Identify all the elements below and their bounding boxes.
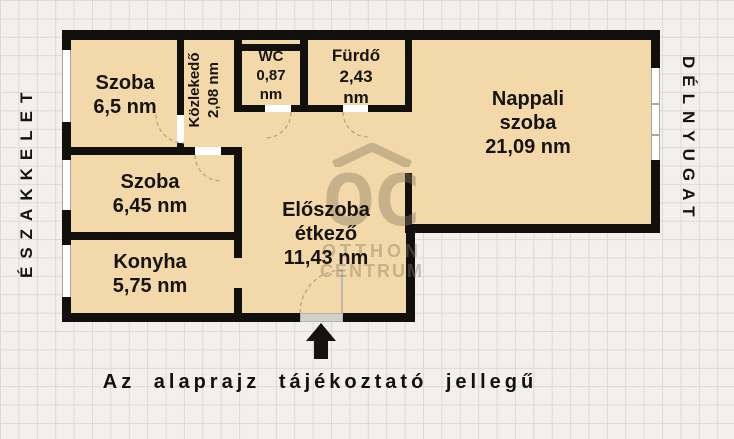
room-label-nappali: Nappali szoba 21,09 nm <box>448 87 608 159</box>
room-name: Előszoba <box>246 198 406 222</box>
door-opening-szoba-felso <box>177 115 184 143</box>
floor-plan-canvas: OC OTTHON CENTRUM Szoba 6,5 nm Közlekedő… <box>0 0 734 439</box>
room-name: Konyha <box>70 250 230 274</box>
wall-bottom-left-section <box>62 313 415 322</box>
window-nappali <box>651 68 660 160</box>
wall-top <box>62 30 660 40</box>
window-mullion <box>651 134 660 136</box>
room-area: 5,75 nm <box>70 274 230 298</box>
room-label-konyha: Konyha 5,75 nm <box>70 250 230 298</box>
room-area: 6,45 nm <box>70 194 230 218</box>
room-name: étkező <box>246 222 406 246</box>
room-name: Szoba <box>70 170 230 194</box>
room-label-szoba-also: Szoba 6,45 nm <box>70 170 230 218</box>
room-area: 21,09 nm <box>448 135 608 159</box>
room-label-furdo: Fürdő 2,43 nm <box>296 45 416 108</box>
room-area: 11,43 nm <box>246 246 406 270</box>
orientation-label-northeast: ÉSZAKKELET <box>17 66 37 296</box>
entrance-arrow-icon <box>306 323 336 359</box>
wall-bottom-nappali <box>406 224 660 233</box>
room-name: Szoba <box>45 71 205 95</box>
room-name: szoba <box>448 111 608 135</box>
window-mullion <box>651 103 660 105</box>
entrance-door-threshold <box>300 313 343 322</box>
room-name: Közlekedő <box>185 30 204 150</box>
room-name: Nappali <box>448 87 608 111</box>
disclaimer-caption: Az alaprajz tájékoztató jellegű <box>60 371 580 394</box>
room-area: 2,43 <box>296 66 416 87</box>
wall-szoba-konyha <box>62 232 240 240</box>
room-label-szoba-felso: Szoba 6,5 nm <box>45 71 205 119</box>
room-area: 6,5 nm <box>45 95 205 119</box>
door-opening-wc <box>265 105 291 112</box>
wall-eloszoba-left-upper <box>234 147 242 258</box>
orientation-label-southwest: DÉLNYUGAT <box>678 40 698 240</box>
wall-right-lower-section <box>406 233 415 322</box>
room-area-unit: nm <box>296 87 416 108</box>
room-name: Fürdő <box>296 45 416 66</box>
wall-eloszoba-nappali <box>405 173 412 233</box>
wall-konyha-right-lower <box>234 288 242 313</box>
room-label-eloszoba: Előszoba étkező 11,43 nm <box>246 198 406 270</box>
